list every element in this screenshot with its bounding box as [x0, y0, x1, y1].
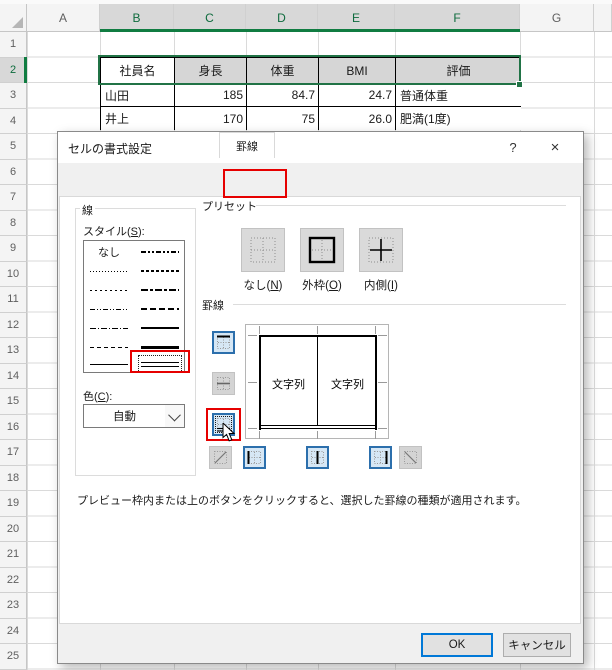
preview-bottom-double-line-2 — [259, 428, 377, 429]
line-style-med-dash-dot[interactable] — [138, 281, 182, 299]
select-all-triangle-icon — [12, 17, 23, 28]
preset-inside-icon — [367, 236, 395, 264]
color-label-key: C — [98, 391, 106, 403]
preset-group-rule — [256, 205, 566, 206]
border-middle-horizontal-button[interactable] — [212, 372, 235, 395]
line-style-medium-solid[interactable] — [138, 319, 182, 337]
diagonal-up-button[interactable] — [209, 446, 232, 469]
close-icon[interactable]: × — [539, 132, 571, 163]
cell[interactable]: 24.7 — [319, 84, 396, 107]
annotation-box-border-tab — [223, 169, 287, 198]
column-header-G[interactable]: G — [520, 4, 594, 32]
cell[interactable]: 75 — [247, 107, 319, 130]
line-style-dotted[interactable] — [87, 281, 131, 299]
format-cells-dialog: セルの書式設定 ? × 表示形式 配置 フォント 罫線 塗りつぶし 保護 線 ス… — [57, 131, 584, 664]
row-header-19[interactable]: 19 — [0, 491, 27, 517]
diagonal-down-button[interactable] — [399, 446, 422, 469]
preset-outline-button[interactable] — [300, 228, 344, 272]
fill-handle[interactable] — [516, 81, 523, 88]
gridline — [594, 32, 595, 670]
preset-inside-label: 内側(I) — [347, 277, 415, 293]
gridline — [27, 32, 28, 670]
style-label-pre: スタイル( — [83, 226, 131, 238]
diagonal-up-icon — [213, 450, 228, 465]
help-icon[interactable]: ? — [497, 132, 529, 163]
row-header-6[interactable]: 6 — [0, 160, 27, 186]
row-header-2[interactable]: 2 — [0, 58, 27, 84]
preset-outline-icon — [308, 236, 336, 264]
color-dropdown[interactable]: 自動 — [83, 404, 185, 428]
dialog-title: セルの書式設定 — [68, 140, 152, 157]
selected-columns-underline — [100, 29, 520, 32]
cell[interactable]: 普通体重 — [396, 84, 521, 107]
row-header-14[interactable]: 14 — [0, 364, 27, 390]
cell[interactable]: 山田 — [101, 84, 175, 107]
line-style-fine-dotted[interactable] — [87, 262, 131, 280]
row-header-18[interactable]: 18 — [0, 466, 27, 492]
tab-border[interactable]: 罫線 — [219, 132, 275, 158]
border-group-rule — [233, 304, 566, 305]
select-all-corner[interactable] — [0, 4, 27, 32]
line-style-dash-dot-dot[interactable] — [87, 300, 131, 318]
border-left-button[interactable] — [243, 446, 266, 469]
row-header-13[interactable]: 13 — [0, 338, 27, 364]
preset-outline-post: ) — [338, 280, 342, 292]
preview-text-right: 文字列 — [318, 376, 377, 392]
color-label-post: ): — [106, 391, 113, 403]
line-style-med-dash-dot-dot[interactable] — [138, 243, 182, 261]
preset-none-post: ) — [279, 280, 283, 292]
cell[interactable]: 井上 — [101, 107, 175, 130]
border-middle-vertical-icon — [310, 450, 325, 465]
style-label-key: S — [131, 226, 138, 238]
preset-none-button[interactable] — [241, 228, 285, 272]
cell[interactable]: 170 — [175, 107, 247, 130]
column-header-A[interactable]: A — [27, 4, 100, 32]
preset-none-key: N — [270, 280, 278, 292]
preset-outline-key: O — [329, 280, 338, 292]
line-group-label: 線 — [80, 202, 95, 218]
row-header-5[interactable]: 5 — [0, 134, 27, 160]
preset-inside-pre: 内側( — [364, 280, 391, 292]
style-label: スタイル(S): — [83, 223, 145, 239]
preset-outline-pre: 外枠( — [302, 280, 329, 292]
cell[interactable]: 26.0 — [319, 107, 396, 130]
row-header-22[interactable]: 22 — [0, 568, 27, 594]
preset-inside-post: ) — [394, 280, 398, 292]
border-top-icon — [216, 335, 231, 350]
style-label-post: ): — [138, 226, 145, 238]
row-header-17[interactable]: 17 — [0, 440, 27, 466]
preview-text-left: 文字列 — [259, 376, 318, 392]
row-header-15[interactable]: 15 — [0, 389, 27, 415]
preset-group-label: プリセット — [200, 198, 259, 214]
annotation-box-double-line-style — [130, 350, 190, 373]
preset-none-icon — [249, 236, 277, 264]
row-header-11[interactable]: 11 — [0, 287, 27, 313]
cancel-button[interactable]: キャンセル — [503, 633, 571, 657]
line-style-slant-dash[interactable] — [138, 262, 182, 280]
row-header-12[interactable]: 12 — [0, 313, 27, 339]
preset-outline-label: 外枠(O) — [288, 277, 356, 293]
row-header-25[interactable]: 25 — [0, 644, 27, 670]
mouse-cursor — [222, 423, 236, 443]
row-header-1[interactable]: 1 — [0, 32, 27, 58]
preview-bottom-double-line-1 — [259, 425, 377, 426]
selected-row-bar — [24, 57, 27, 83]
border-group-label: 罫線 — [200, 297, 226, 313]
border-right-icon — [373, 450, 388, 465]
selection-border — [98, 55, 521, 85]
column-header-C[interactable]: C — [174, 4, 246, 32]
ok-button[interactable]: OK — [421, 633, 493, 657]
cell[interactable]: 肥満(1度) — [396, 107, 521, 130]
border-top-button[interactable] — [212, 331, 235, 354]
row-header-23[interactable]: 23 — [0, 593, 27, 619]
row-header-20[interactable]: 20 — [0, 517, 27, 543]
chevron-down-icon[interactable] — [165, 405, 184, 427]
column-header-B[interactable]: B — [100, 4, 174, 32]
row-header-4[interactable]: 4 — [0, 109, 27, 135]
cell[interactable]: 84.7 — [247, 84, 319, 107]
border-middle-horizontal-icon — [216, 376, 231, 391]
line-style-thin-solid[interactable] — [87, 355, 131, 373]
column-header-E[interactable]: E — [318, 4, 395, 32]
row-header-9[interactable]: 9 — [0, 236, 27, 262]
preset-none-pre: なし( — [244, 280, 271, 292]
column-header[interactable] — [594, 4, 612, 32]
line-style-dash-dot[interactable] — [87, 319, 131, 337]
row-header-24[interactable]: 24 — [0, 619, 27, 645]
diagonal-down-icon — [403, 450, 418, 465]
preset-inside-button[interactable] — [359, 228, 403, 272]
line-style-dashed[interactable] — [87, 338, 131, 356]
row-header-8[interactable]: 8 — [0, 211, 27, 237]
border-middle-vertical-button[interactable] — [306, 446, 329, 469]
row-header-16[interactable]: 16 — [0, 415, 27, 441]
row-header-3[interactable]: 3 — [0, 83, 27, 109]
excel-window: ABCDEFG 12345678910111213141516171819202… — [0, 0, 612, 670]
border-right-button[interactable] — [369, 446, 392, 469]
row-header-21[interactable]: 21 — [0, 542, 27, 568]
column-header-D[interactable]: D — [246, 4, 318, 32]
row-header-7[interactable]: 7 — [0, 185, 27, 211]
row-header-10[interactable]: 10 — [0, 262, 27, 288]
preset-none-label: なし(N) — [229, 277, 297, 293]
cell[interactable]: 185 — [175, 84, 247, 107]
color-dropdown-value: 自動 — [84, 408, 165, 424]
dialog-description: プレビュー枠内または上のボタンをクリックすると、選択した罫線の種類が適用されます… — [77, 492, 573, 508]
border-preview[interactable]: 文字列 文字列 — [245, 324, 389, 439]
column-header-F[interactable]: F — [395, 4, 520, 32]
dialog-titlebar[interactable]: セルの書式設定 ? × — [58, 132, 583, 163]
color-label-pre: 色( — [83, 391, 98, 403]
line-style-none[interactable]: なし — [87, 243, 131, 261]
color-label: 色(C): — [83, 388, 112, 404]
line-style-med-dashed[interactable] — [138, 300, 182, 318]
border-left-icon — [247, 450, 262, 465]
